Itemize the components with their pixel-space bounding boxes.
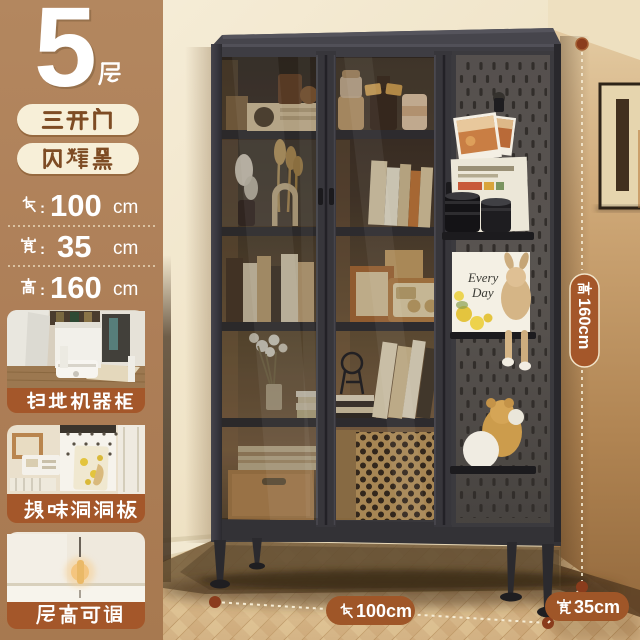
svg-text:100cm: 100cm <box>356 601 412 621</box>
svg-text:160: 160 <box>50 270 102 305</box>
svg-text:35: 35 <box>57 229 91 264</box>
svg-text:35cm: 35cm <box>574 597 620 617</box>
svg-text:100: 100 <box>50 188 102 223</box>
svg-text:5: 5 <box>34 0 97 110</box>
svg-text:Every: Every <box>467 270 499 285</box>
svg-text:cm: cm <box>113 197 138 218</box>
svg-text::: : <box>40 200 45 217</box>
svg-text:cm: cm <box>113 279 138 300</box>
svg-text:Day: Day <box>471 285 494 300</box>
svg-text:cm: cm <box>113 238 138 259</box>
svg-text::: : <box>40 282 45 299</box>
svg-text::: : <box>40 241 45 258</box>
svg-text:160cm: 160cm <box>575 298 593 349</box>
